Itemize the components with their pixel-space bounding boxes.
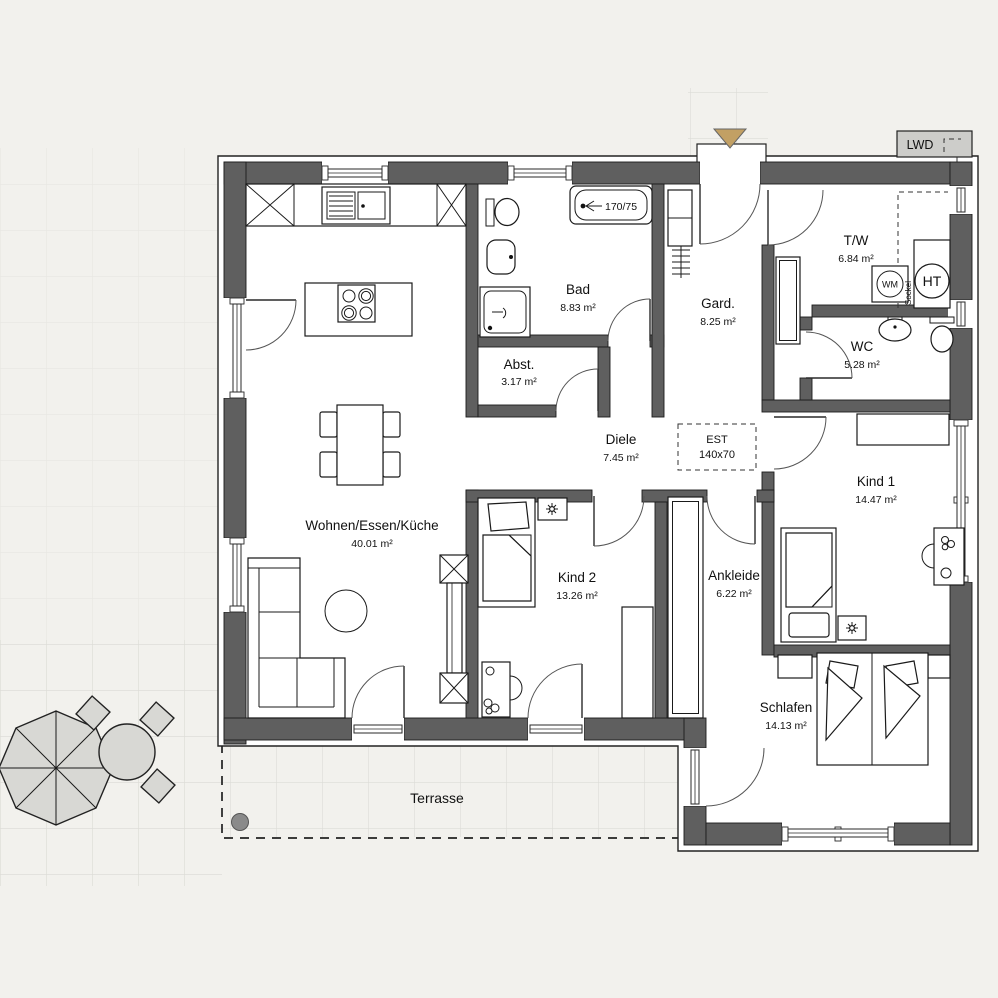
dining-chair-icon bbox=[320, 452, 337, 477]
room-area-ankleide: 6.22 m² bbox=[716, 588, 752, 600]
lwd-label: LWD bbox=[907, 138, 934, 152]
kitchen-island bbox=[305, 283, 412, 336]
hall-wardrobe-icon bbox=[776, 257, 800, 344]
room-area-wohnen: 40.01 m² bbox=[351, 538, 393, 550]
floor-plan-page: LWD bbox=[0, 0, 998, 998]
pillow-icon bbox=[789, 613, 829, 637]
room-label-schlafen: Schlafen bbox=[760, 700, 813, 715]
ankleide-wardrobe-icon bbox=[668, 497, 703, 718]
wm-label: WM bbox=[882, 280, 898, 290]
terrace-label: Terrasse bbox=[410, 790, 464, 806]
room-label-kind1: Kind 1 bbox=[857, 474, 895, 489]
window-schlafen bbox=[782, 821, 894, 847]
room-label-ankleide: Ankleide bbox=[708, 568, 760, 583]
floor-plan-drawing: LWD bbox=[0, 0, 998, 998]
cooktop-icon bbox=[338, 285, 375, 322]
bathtub-size-label: 170/75 bbox=[605, 201, 637, 213]
bathtub-icon: 170/75 bbox=[570, 186, 652, 224]
ht-label: HT bbox=[923, 273, 942, 289]
room-area-garderobe: 8.25 m² bbox=[700, 316, 736, 328]
window-tw bbox=[948, 186, 974, 214]
nightstand-icon bbox=[778, 655, 812, 678]
room-area-diele: 7.45 m² bbox=[603, 452, 639, 464]
room-label-tw: T/W bbox=[844, 233, 869, 248]
est-label: EST bbox=[706, 434, 728, 446]
kind1-stool-icon bbox=[838, 616, 866, 640]
kind2-stool-icon bbox=[538, 498, 567, 520]
room-label-bad: Bad bbox=[566, 282, 590, 297]
dining-table-icon bbox=[337, 405, 383, 485]
room-label-kind2: Kind 2 bbox=[558, 570, 596, 585]
room-label-diele: Diele bbox=[606, 432, 637, 447]
dining-chair-icon bbox=[320, 412, 337, 437]
window-living-left bbox=[222, 538, 248, 612]
shower-icon bbox=[480, 287, 530, 337]
room-label-wc: WC bbox=[851, 339, 874, 354]
window-bad bbox=[508, 160, 572, 186]
room-label-garderobe: Gard. bbox=[701, 296, 735, 311]
room-label-wohnen: Wohnen/Essen/Küche bbox=[305, 518, 438, 533]
kind2-bed-icon bbox=[478, 498, 535, 607]
terrace-marker-dot bbox=[232, 814, 249, 831]
garden-table-icon bbox=[99, 724, 155, 780]
room-area-wc: 5.28 m² bbox=[844, 359, 880, 371]
nightstand-icon bbox=[928, 655, 950, 678]
washing-machine-icon: WM bbox=[872, 266, 908, 302]
window-wc bbox=[948, 300, 974, 328]
room-area-kind1: 14.47 m² bbox=[855, 494, 897, 506]
dining-chair-icon bbox=[383, 452, 400, 477]
kind1-shelf-icon bbox=[857, 414, 949, 445]
kitchen-sink-icon bbox=[322, 187, 390, 224]
window-kitchen bbox=[322, 160, 388, 186]
est-size-label: 140x70 bbox=[699, 449, 735, 461]
room-area-kind2: 13.26 m² bbox=[556, 590, 598, 602]
sockel-label: Sockel bbox=[904, 281, 913, 305]
heater-icon: HT bbox=[914, 240, 950, 308]
room-area-tw: 6.84 m² bbox=[838, 253, 874, 265]
double-bed-icon bbox=[817, 653, 928, 765]
dining-chair-icon bbox=[383, 412, 400, 437]
room-label-abstellraum: Abst. bbox=[504, 357, 535, 372]
pillow-icon bbox=[488, 502, 529, 531]
kind2-wardrobe-icon bbox=[622, 607, 653, 718]
kind1-bed-icon bbox=[781, 528, 836, 642]
room-area-abstellraum: 3.17 m² bbox=[501, 376, 537, 388]
room-area-schlafen: 14.13 m² bbox=[765, 720, 807, 732]
room-area-bad: 8.83 m² bbox=[560, 302, 596, 314]
sink-bad-icon bbox=[487, 240, 515, 274]
